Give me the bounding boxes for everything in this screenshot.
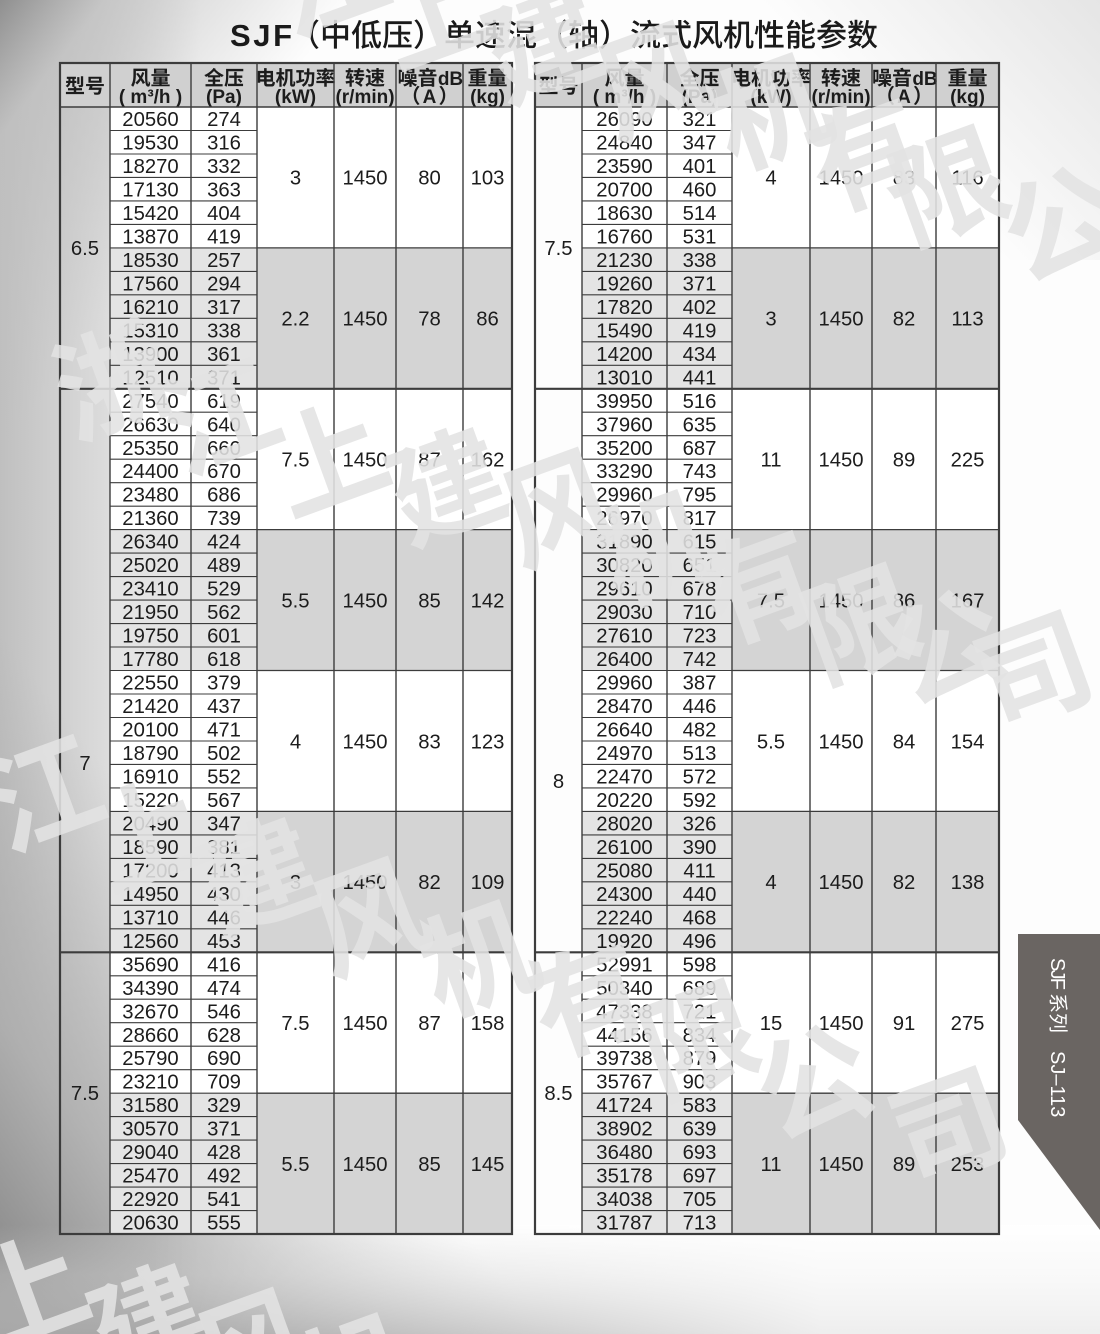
svg-text:460: 460 <box>683 180 717 202</box>
svg-text:329: 329 <box>207 1095 241 1117</box>
svg-text:316: 316 <box>207 133 241 155</box>
svg-text:31787: 31787 <box>596 1213 652 1235</box>
svg-text:16210: 16210 <box>122 297 178 319</box>
svg-text:347: 347 <box>683 133 717 155</box>
svg-text:(kW): (kW) <box>275 87 316 108</box>
svg-text:1450: 1450 <box>818 1154 863 1176</box>
svg-text:446: 446 <box>683 696 717 718</box>
svg-text:1450: 1450 <box>818 872 863 894</box>
svg-text:428: 428 <box>207 1142 241 1164</box>
svg-text:363: 363 <box>207 180 241 202</box>
svg-text:723: 723 <box>683 626 717 648</box>
svg-text:145: 145 <box>471 1154 505 1176</box>
svg-text:404: 404 <box>207 203 241 225</box>
svg-text:371: 371 <box>683 273 717 295</box>
svg-text:1450: 1450 <box>342 1013 387 1035</box>
svg-text:26640: 26640 <box>596 720 652 742</box>
svg-text:338: 338 <box>207 320 241 342</box>
svg-text:80: 80 <box>418 168 441 190</box>
svg-text:SJ–113: SJ–113 <box>1046 1051 1068 1117</box>
svg-text:4: 4 <box>290 731 301 753</box>
svg-text:7.5: 7.5 <box>71 1083 99 1105</box>
svg-text:514: 514 <box>683 203 717 225</box>
svg-text:19530: 19530 <box>122 133 178 155</box>
svg-text:(kg): (kg) <box>950 87 985 108</box>
svg-text:739: 739 <box>207 508 241 530</box>
svg-text:25020: 25020 <box>122 555 178 577</box>
svg-text:14200: 14200 <box>596 344 652 366</box>
svg-text:24970: 24970 <box>596 743 652 765</box>
svg-text:416: 416 <box>207 954 241 976</box>
svg-text:496: 496 <box>683 931 717 953</box>
svg-text:34390: 34390 <box>122 978 178 1000</box>
svg-text:1450: 1450 <box>342 590 387 612</box>
svg-text:513: 513 <box>683 743 717 765</box>
svg-text:390: 390 <box>683 837 717 859</box>
svg-text:22920: 22920 <box>122 1189 178 1211</box>
svg-text:20700: 20700 <box>596 180 652 202</box>
svg-text:1450: 1450 <box>342 450 387 472</box>
svg-text:13710: 13710 <box>122 907 178 929</box>
svg-text:419: 419 <box>207 226 241 248</box>
svg-text:(Pa): (Pa) <box>206 87 242 108</box>
svg-text:SJF: SJF <box>230 18 292 53</box>
svg-text:5.5: 5.5 <box>281 590 309 612</box>
svg-text:13870: 13870 <box>122 226 178 248</box>
svg-text:5.5: 5.5 <box>281 1154 309 1176</box>
svg-text:441: 441 <box>683 367 717 389</box>
svg-text:1450: 1450 <box>342 309 387 331</box>
svg-text:87: 87 <box>418 1013 441 1035</box>
svg-text:22470: 22470 <box>596 767 652 789</box>
svg-text:26100: 26100 <box>596 837 652 859</box>
svg-text:15490: 15490 <box>596 320 652 342</box>
svg-text:1450: 1450 <box>342 1154 387 1176</box>
svg-text:17820: 17820 <box>596 297 652 319</box>
svg-text:2.2: 2.2 <box>281 309 309 331</box>
svg-text:25350: 25350 <box>122 438 178 460</box>
svg-text:(r/min): (r/min) <box>811 87 870 108</box>
svg-text:21230: 21230 <box>596 250 652 272</box>
svg-text:387: 387 <box>683 673 717 695</box>
svg-text:41724: 41724 <box>596 1095 652 1117</box>
svg-text:471: 471 <box>207 720 241 742</box>
svg-text:25790: 25790 <box>122 1048 178 1070</box>
svg-text:19750: 19750 <box>122 626 178 648</box>
svg-text:30570: 30570 <box>122 1119 178 1141</box>
svg-text:23210: 23210 <box>122 1072 178 1094</box>
svg-text:32670: 32670 <box>122 1001 178 1023</box>
svg-text:347: 347 <box>207 813 241 835</box>
svg-text:17560: 17560 <box>122 273 178 295</box>
svg-text:23480: 23480 <box>122 485 178 507</box>
svg-text:13010: 13010 <box>596 367 652 389</box>
svg-text:4: 4 <box>765 872 776 894</box>
svg-text:332: 332 <box>207 156 241 178</box>
svg-text:5.5: 5.5 <box>757 731 785 753</box>
svg-text:572: 572 <box>683 767 717 789</box>
svg-text:27610: 27610 <box>596 626 652 648</box>
svg-text:82: 82 <box>893 309 916 331</box>
svg-text:154: 154 <box>951 731 985 753</box>
svg-text:91: 91 <box>893 1013 916 1035</box>
svg-text:274: 274 <box>207 109 241 131</box>
svg-text:11: 11 <box>760 450 781 472</box>
svg-text:17780: 17780 <box>122 649 178 671</box>
svg-text:36480: 36480 <box>596 1142 652 1164</box>
svg-text:379: 379 <box>207 673 241 695</box>
svg-text:31580: 31580 <box>122 1095 178 1117</box>
svg-text:440: 440 <box>683 884 717 906</box>
svg-text:419: 419 <box>683 320 717 342</box>
svg-text:89: 89 <box>893 450 916 472</box>
svg-text:628: 628 <box>207 1025 241 1047</box>
svg-text:24300: 24300 <box>596 884 652 906</box>
svg-text:20560: 20560 <box>122 109 178 131</box>
svg-text:23590: 23590 <box>596 156 652 178</box>
svg-text:541: 541 <box>207 1189 241 1211</box>
svg-text:317: 317 <box>207 297 241 319</box>
svg-text:7.5: 7.5 <box>281 450 309 472</box>
svg-text:8: 8 <box>553 771 564 793</box>
svg-text:(kg): (kg) <box>470 87 505 108</box>
svg-text:516: 516 <box>683 391 717 413</box>
svg-text:598: 598 <box>683 954 717 976</box>
svg-text:85: 85 <box>418 590 441 612</box>
svg-text:567: 567 <box>207 790 241 812</box>
svg-text:531: 531 <box>683 226 717 248</box>
svg-text:38902: 38902 <box>596 1119 652 1141</box>
svg-text:687: 687 <box>683 438 717 460</box>
svg-text:1450: 1450 <box>818 731 863 753</box>
svg-text:402: 402 <box>683 297 717 319</box>
svg-text:552: 552 <box>207 767 241 789</box>
svg-text:18630: 18630 <box>596 203 652 225</box>
svg-text:20630: 20630 <box>122 1213 178 1235</box>
svg-text:35690: 35690 <box>122 954 178 976</box>
svg-text:34038: 34038 <box>596 1189 652 1211</box>
svg-text:639: 639 <box>683 1119 717 1141</box>
svg-text:113: 113 <box>951 309 983 331</box>
svg-text:618: 618 <box>207 649 241 671</box>
svg-text:158: 158 <box>471 1013 505 1035</box>
svg-text:225: 225 <box>951 450 985 472</box>
svg-text:1450: 1450 <box>342 168 387 190</box>
svg-text:710: 710 <box>683 602 717 624</box>
svg-text:21420: 21420 <box>122 696 178 718</box>
svg-text:742: 742 <box>683 649 717 671</box>
svg-text:22240: 22240 <box>596 907 652 929</box>
svg-text:33290: 33290 <box>596 461 652 483</box>
svg-text:635: 635 <box>683 414 717 436</box>
svg-text:401: 401 <box>683 156 717 178</box>
svg-text:20100: 20100 <box>122 720 178 742</box>
svg-text:562: 562 <box>207 602 241 624</box>
svg-text:555: 555 <box>207 1213 241 1235</box>
svg-text:6.5: 6.5 <box>71 238 99 260</box>
svg-text:26340: 26340 <box>122 532 178 554</box>
svg-text:17130: 17130 <box>122 180 178 202</box>
svg-text:82: 82 <box>418 872 441 894</box>
svg-text:338: 338 <box>683 250 717 272</box>
svg-text:25080: 25080 <box>596 860 652 882</box>
svg-text:21950: 21950 <box>122 602 178 624</box>
svg-text:1450: 1450 <box>818 309 863 331</box>
svg-text:123: 123 <box>471 731 505 753</box>
svg-text:371: 371 <box>207 1119 241 1141</box>
svg-text:21360: 21360 <box>122 508 178 530</box>
svg-text:437: 437 <box>207 696 241 718</box>
svg-text:35767: 35767 <box>596 1072 652 1094</box>
svg-text:12560: 12560 <box>122 931 178 953</box>
svg-text:434: 434 <box>683 344 717 366</box>
svg-text:3: 3 <box>290 168 301 190</box>
svg-text:1450: 1450 <box>342 731 387 753</box>
svg-text:592: 592 <box>683 790 717 812</box>
svg-text:15420: 15420 <box>122 203 178 225</box>
svg-text:529: 529 <box>207 579 241 601</box>
svg-text:489: 489 <box>207 555 241 577</box>
svg-text:24400: 24400 <box>122 461 178 483</box>
svg-text:705: 705 <box>683 1189 717 1211</box>
svg-text:492: 492 <box>207 1166 241 1188</box>
svg-text:257: 257 <box>207 250 241 272</box>
svg-text:424: 424 <box>207 532 241 554</box>
svg-text:A: A <box>423 87 437 108</box>
svg-text:11: 11 <box>760 1154 781 1176</box>
svg-text:20220: 20220 <box>596 790 652 812</box>
svg-text:468: 468 <box>683 907 717 929</box>
svg-text:103: 103 <box>471 168 505 190</box>
svg-text:502: 502 <box>207 743 241 765</box>
svg-text:109: 109 <box>471 872 505 894</box>
svg-text:23410: 23410 <box>122 579 178 601</box>
svg-text:546: 546 <box>207 1001 241 1023</box>
svg-text:SJF: SJF <box>1046 958 1068 990</box>
svg-text:84: 84 <box>893 731 916 753</box>
svg-text:26400: 26400 <box>596 649 652 671</box>
svg-text:693: 693 <box>683 1142 717 1164</box>
svg-text:29040: 29040 <box>122 1142 178 1164</box>
svg-text:35200: 35200 <box>596 438 652 460</box>
svg-text:28470: 28470 <box>596 696 652 718</box>
svg-text:686: 686 <box>207 485 241 507</box>
svg-text:294: 294 <box>207 273 241 295</box>
svg-text:697: 697 <box>683 1166 717 1188</box>
svg-text:601: 601 <box>207 626 241 648</box>
svg-text:7: 7 <box>79 753 90 775</box>
svg-text:25470: 25470 <box>122 1166 178 1188</box>
svg-text:89: 89 <box>893 1154 916 1176</box>
svg-text:3: 3 <box>765 309 776 331</box>
svg-text:709: 709 <box>207 1072 241 1094</box>
svg-text:583: 583 <box>683 1095 717 1117</box>
svg-text:7.5: 7.5 <box>281 1013 309 1035</box>
svg-text:795: 795 <box>683 485 717 507</box>
svg-text:138: 138 <box>951 872 985 894</box>
svg-text:35178: 35178 <box>596 1166 652 1188</box>
svg-text:1450: 1450 <box>818 1013 863 1035</box>
svg-text:18530: 18530 <box>122 250 178 272</box>
svg-text:( m³/h ): ( m³/h ) <box>119 87 182 108</box>
svg-text:86: 86 <box>476 309 499 331</box>
svg-text:82: 82 <box>893 872 916 894</box>
svg-text:8.5: 8.5 <box>544 1083 572 1105</box>
svg-text:411: 411 <box>683 860 715 882</box>
svg-text:37960: 37960 <box>596 414 652 436</box>
svg-text:18790: 18790 <box>122 743 178 765</box>
svg-text:16760: 16760 <box>596 226 652 248</box>
svg-text:18270: 18270 <box>122 156 178 178</box>
svg-text:142: 142 <box>471 590 505 612</box>
svg-text:15: 15 <box>760 1013 783 1035</box>
svg-text:(r/min): (r/min) <box>335 87 394 108</box>
svg-text:1450: 1450 <box>818 450 863 472</box>
svg-text:29960: 29960 <box>596 673 652 695</box>
svg-text:7.5: 7.5 <box>544 238 572 260</box>
svg-text:28660: 28660 <box>122 1025 178 1047</box>
svg-text:743: 743 <box>683 461 717 483</box>
svg-text:275: 275 <box>951 1013 985 1035</box>
svg-text:78: 78 <box>418 309 441 331</box>
svg-text:713: 713 <box>683 1213 717 1235</box>
svg-text:28020: 28020 <box>596 813 652 835</box>
svg-text:4: 4 <box>765 168 776 190</box>
svg-text:482: 482 <box>683 720 717 742</box>
svg-text:474: 474 <box>207 978 241 1000</box>
svg-text:19260: 19260 <box>596 273 652 295</box>
svg-text:39738: 39738 <box>596 1048 652 1070</box>
svg-text:326: 326 <box>683 813 717 835</box>
svg-text:85: 85 <box>418 1154 441 1176</box>
svg-text:39950: 39950 <box>596 391 652 413</box>
svg-text:83: 83 <box>418 731 441 753</box>
svg-text:670: 670 <box>207 461 241 483</box>
svg-text:22550: 22550 <box>122 673 178 695</box>
svg-text:690: 690 <box>207 1048 241 1070</box>
